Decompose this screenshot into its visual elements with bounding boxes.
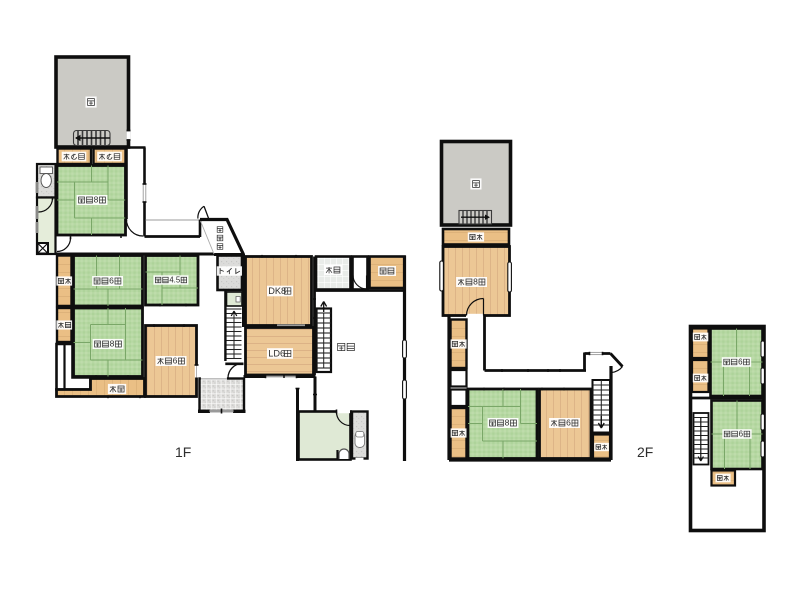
svg-text:DK8: DK8 — [268, 286, 286, 296]
svg-text:8: 8 — [505, 418, 510, 428]
svg-text:1F: 1F — [175, 444, 191, 460]
svg-text:6: 6 — [739, 430, 744, 439]
svg-text:2F: 2F — [637, 444, 653, 460]
svg-text:8: 8 — [110, 339, 115, 349]
svg-text:6: 6 — [109, 276, 114, 286]
svg-text:4.5: 4.5 — [169, 275, 181, 284]
svg-text:8: 8 — [94, 195, 99, 205]
svg-text:LD6: LD6 — [268, 348, 285, 358]
svg-text:8: 8 — [473, 277, 478, 287]
svg-text:6: 6 — [173, 356, 178, 366]
svg-text:6: 6 — [566, 418, 571, 428]
svg-text:6: 6 — [738, 358, 743, 367]
